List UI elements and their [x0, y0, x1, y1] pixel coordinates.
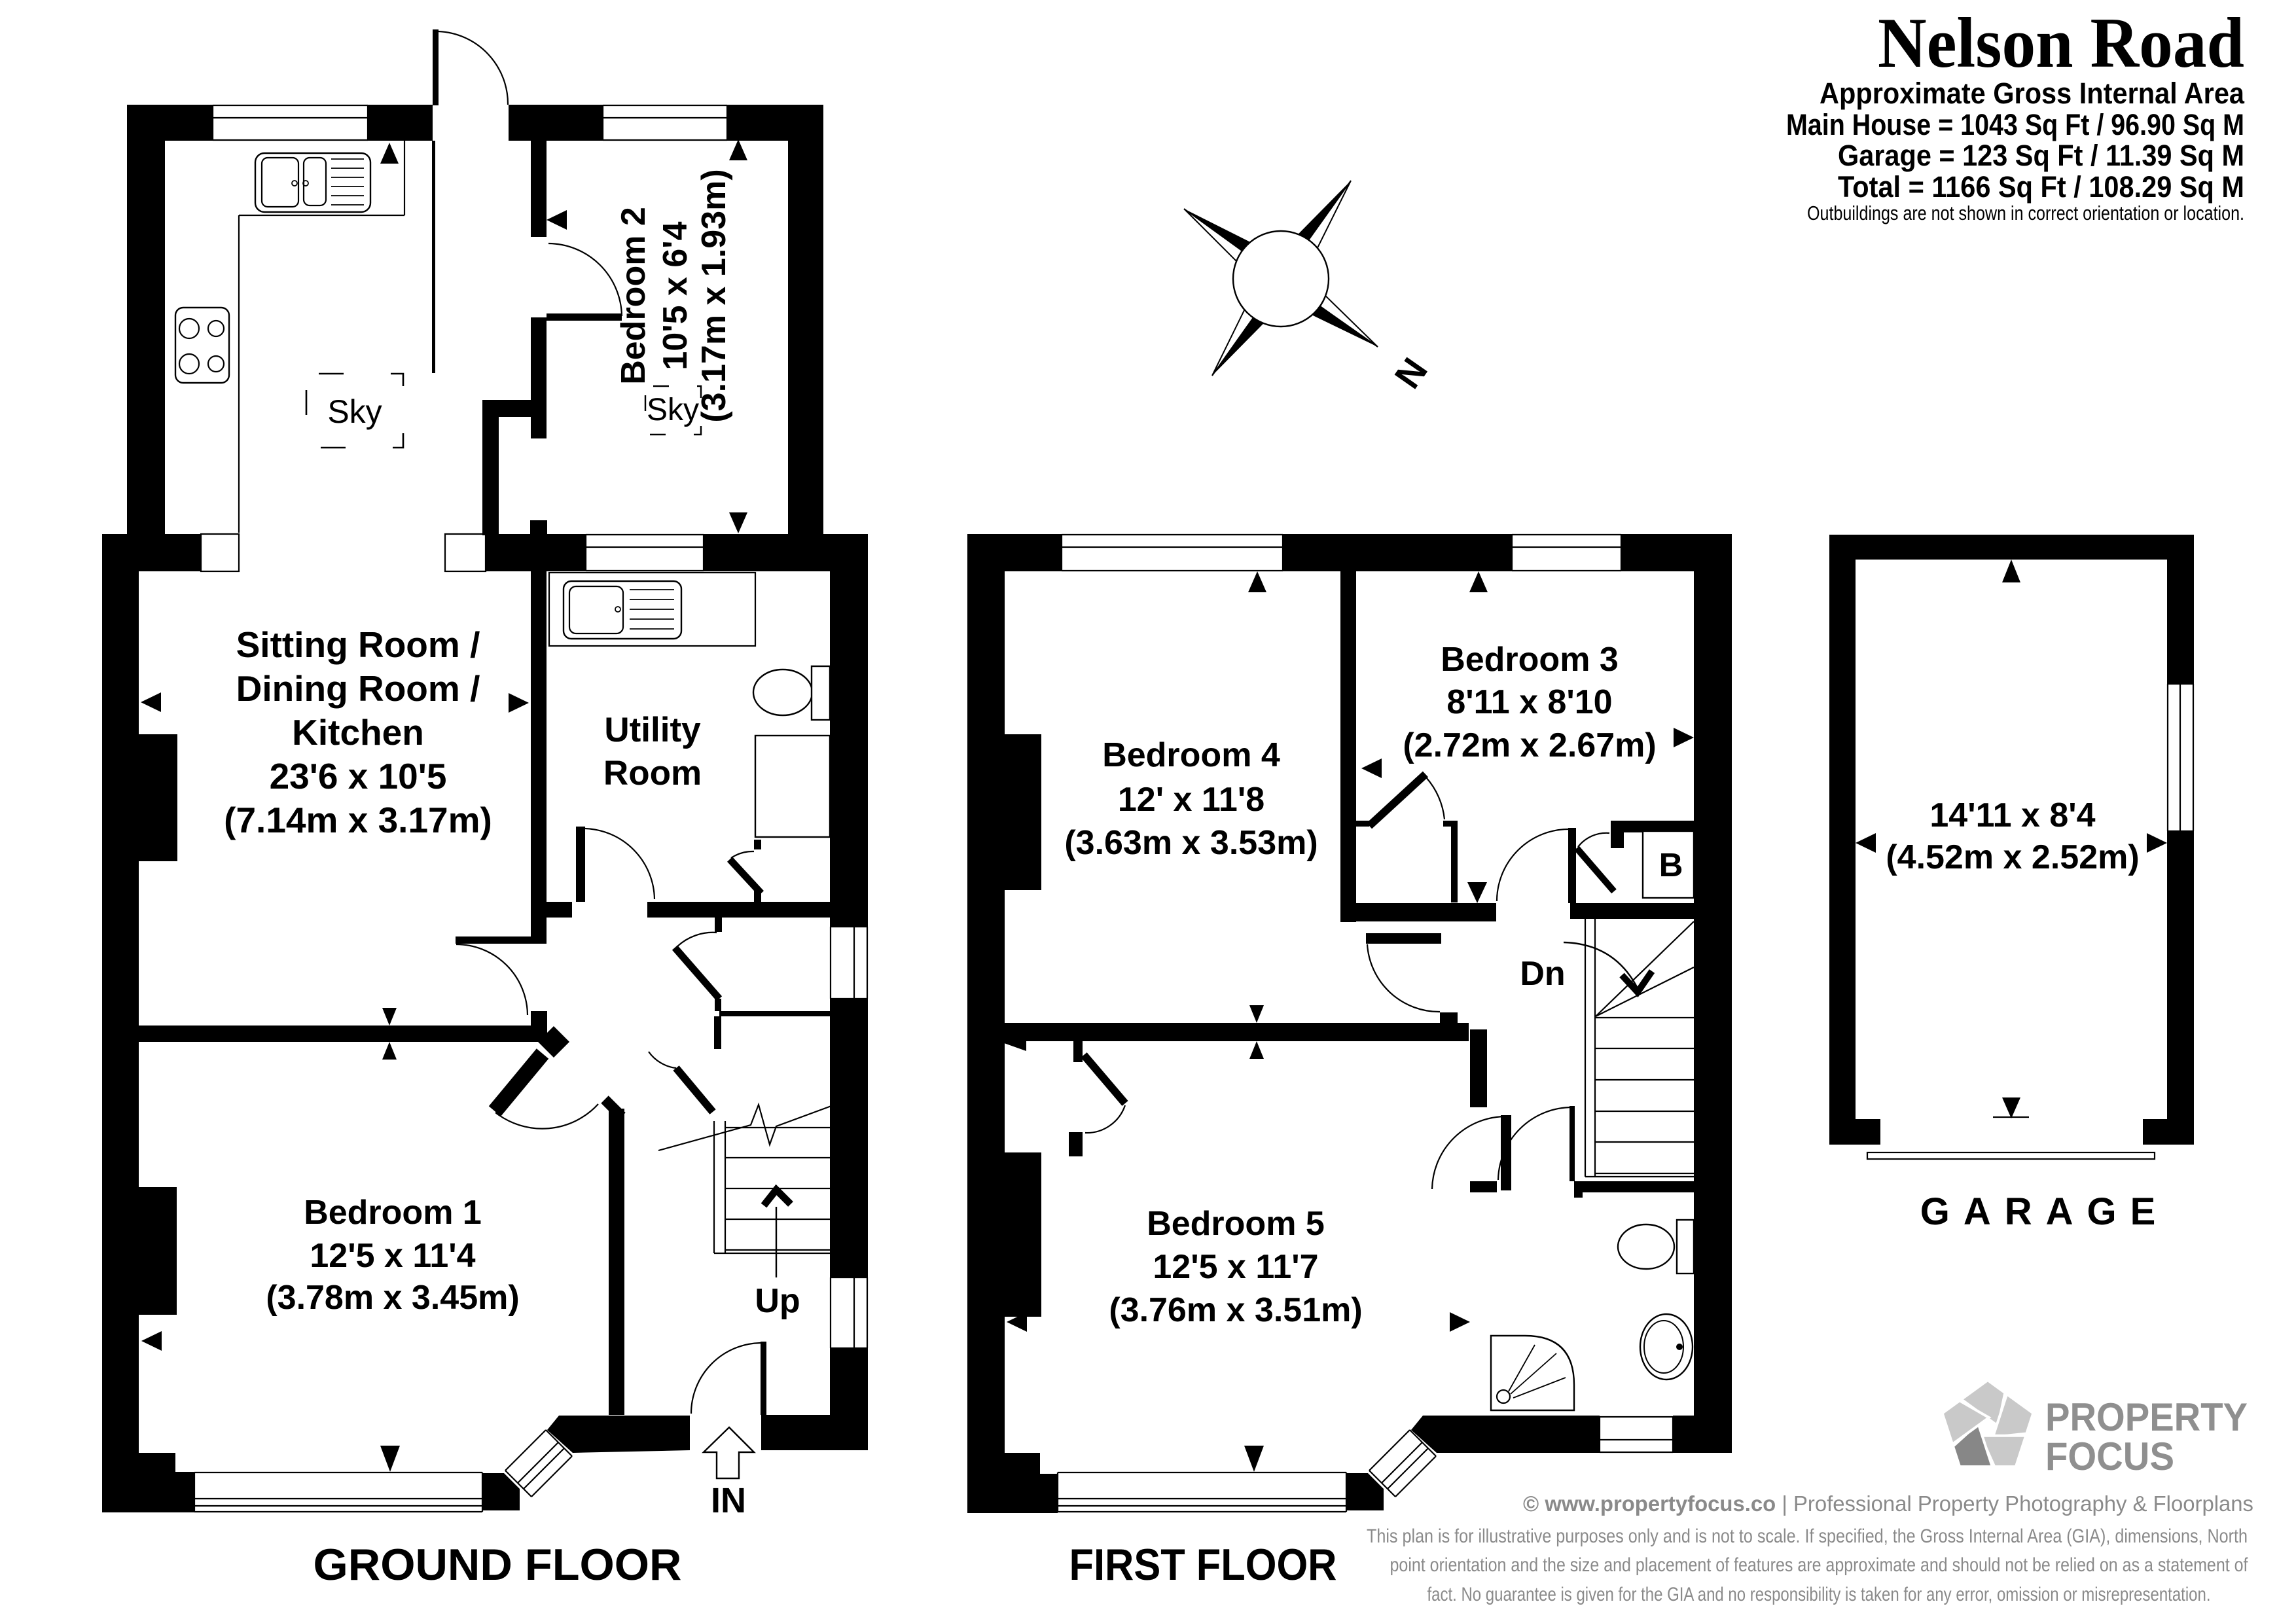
svg-text:point orientation and the size: point orientation and the size and place… — [1390, 1554, 2249, 1576]
svg-text:© www.propertyfocus.co | Profe: © www.propertyfocus.co | Professional Pr… — [1523, 1491, 2253, 1516]
svg-text:14'11 x 8'4: 14'11 x 8'4 — [1929, 796, 2095, 834]
svg-text:Bedroom 1: Bedroom 1 — [304, 1194, 482, 1232]
svg-text:FIRST FLOOR: FIRST FLOOR — [1069, 1540, 1337, 1590]
svg-text:12'5 x 11'7: 12'5 x 11'7 — [1153, 1248, 1318, 1286]
svg-text:Room: Room — [603, 754, 702, 793]
svg-text:(3.78m x 3.45m): (3.78m x 3.45m) — [266, 1279, 519, 1317]
svg-text:Garage = 123 Sq Ft / 11.39 Sq: Garage = 123 Sq Ft / 11.39 Sq M — [1838, 139, 2244, 172]
svg-text:Sky: Sky — [647, 393, 699, 427]
svg-text:Dining Room /: Dining Room / — [236, 668, 480, 709]
svg-text:Approximate Gross Internal Are: Approximate Gross Internal Area — [1820, 77, 2245, 110]
svg-text:GROUND FLOOR: GROUND FLOOR — [314, 1540, 682, 1590]
svg-text:Dn: Dn — [1520, 955, 1565, 993]
svg-text:12'5 x 11'4: 12'5 x 11'4 — [310, 1237, 475, 1275]
svg-text:Sitting Room /: Sitting Room / — [236, 624, 480, 665]
svg-text:8'11 x 8'10: 8'11 x 8'10 — [1446, 683, 1612, 721]
svg-text:Nelson Road: Nelson Road — [1878, 3, 2244, 82]
svg-text:(2.72m x 2.67m): (2.72m x 2.67m) — [1403, 726, 1656, 764]
svg-text:12' x 11'8: 12' x 11'8 — [1118, 781, 1265, 819]
svg-text:(3.17m x 1.93m): (3.17m x 1.93m) — [695, 169, 733, 422]
svg-text:IN: IN — [711, 1481, 746, 1520]
svg-text:Bedroom 2: Bedroom 2 — [615, 207, 653, 385]
svg-text:B: B — [1659, 846, 1683, 883]
svg-text:Main House = 1043 Sq Ft / 96.9: Main House = 1043 Sq Ft / 96.90 Sq M — [1786, 108, 2244, 141]
svg-text:Utility: Utility — [604, 711, 701, 749]
svg-text:(7.14m x 3.17m): (7.14m x 3.17m) — [224, 800, 492, 840]
svg-text:Bedroom 4: Bedroom 4 — [1102, 736, 1280, 774]
svg-text:Kitchen: Kitchen — [292, 712, 424, 753]
svg-text:Bedroom 5: Bedroom 5 — [1147, 1205, 1325, 1243]
svg-text:23'6 x 10'5: 23'6 x 10'5 — [270, 756, 447, 796]
svg-text:This plan is for illustrative: This plan is for illustrative purposes o… — [1367, 1525, 2248, 1547]
svg-text:(4.52m x 2.52m): (4.52m x 2.52m) — [1886, 838, 2139, 876]
svg-text:(3.63m x 3.53m): (3.63m x 3.53m) — [1064, 824, 1318, 862]
svg-text:10'5 x 6'4: 10'5 x 6'4 — [656, 221, 694, 370]
svg-text:(3.76m x 3.51m): (3.76m x 3.51m) — [1109, 1291, 1362, 1329]
svg-text:GARAGE: GARAGE — [1920, 1190, 2170, 1233]
svg-text:Sky: Sky — [327, 393, 382, 430]
svg-text:fact. No guarantee is given fo: fact. No guarantee is given for the GIA … — [1427, 1584, 2211, 1605]
svg-text:Bedroom 3: Bedroom 3 — [1441, 641, 1619, 679]
svg-text:Total = 1166 Sq Ft / 108.29 Sq: Total = 1166 Sq Ft / 108.29 Sq M — [1838, 170, 2244, 204]
svg-text:FOCUS: FOCUS — [2045, 1435, 2174, 1478]
svg-text:Outbuildings are not shown in: Outbuildings are not shown in correct or… — [1807, 202, 2244, 224]
svg-text:Up: Up — [755, 1282, 800, 1320]
svg-text:PROPERTY: PROPERTY — [2045, 1395, 2248, 1439]
